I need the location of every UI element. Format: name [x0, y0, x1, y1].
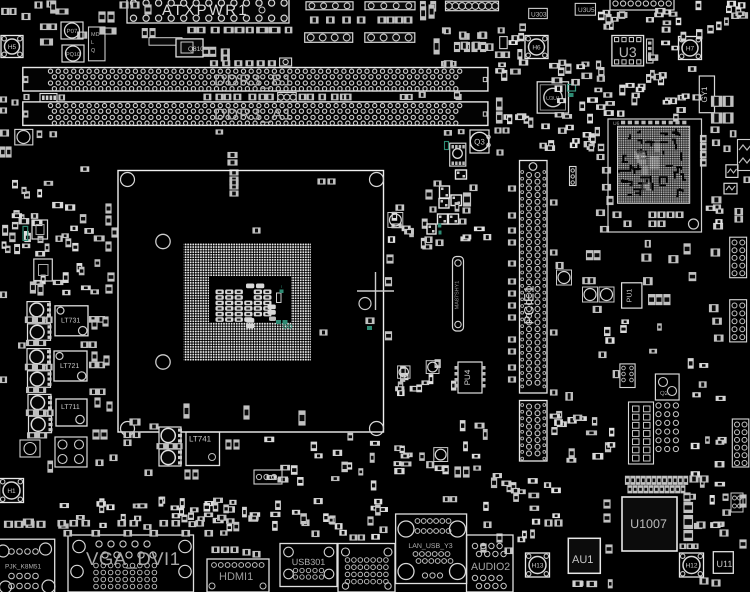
svg-text:PJK_K8M51: PJK_K8M51 — [5, 564, 42, 571]
svg-text:PU1: PU1 — [627, 289, 634, 303]
svg-text:ATXPWR1: ATXPWR1 — [162, 2, 249, 19]
svg-text:H7: H7 — [686, 46, 695, 53]
svg-text:U6: U6 — [613, 121, 620, 127]
svg-text:MA87SHY1: MA87SHY1 — [455, 281, 461, 310]
svg-text:U11: U11 — [717, 559, 733, 569]
svg-text:HDMI1: HDMI1 — [219, 571, 253, 583]
svg-text:Q2: Q2 — [660, 390, 669, 397]
svg-text:VGA_DVI1: VGA_DVI1 — [86, 548, 181, 569]
svg-text:USB301: USB301 — [292, 557, 326, 567]
svg-text:DDR3_B1: DDR3_B1 — [214, 73, 293, 90]
svg-text:L: L — [91, 40, 94, 46]
svg-text:LT711: LT711 — [61, 404, 80, 411]
svg-text:Q3: Q3 — [474, 138, 485, 147]
svg-text:H5: H5 — [8, 44, 17, 51]
svg-text:PU4: PU4 — [463, 369, 472, 385]
svg-text:PCIE1: PCIE1 — [522, 285, 537, 324]
svg-text:U3: U3 — [619, 44, 637, 60]
svg-text:LT731: LT731 — [61, 318, 80, 325]
svg-text:GY1: GY1 — [700, 86, 709, 103]
svg-text:H12: H12 — [686, 563, 698, 570]
svg-text:DDR3_A1: DDR3_A1 — [214, 107, 293, 124]
svg-text:H6: H6 — [532, 45, 541, 52]
svg-text:U1007: U1007 — [630, 517, 667, 531]
svg-text:LAN_USB_Y3: LAN_USB_Y3 — [408, 543, 452, 550]
svg-text:P07: P07 — [67, 28, 78, 35]
svg-text:Q: Q — [91, 48, 96, 54]
svg-text:I: I — [281, 284, 282, 289]
svg-text:H13: H13 — [532, 563, 544, 570]
svg-text:MD: MD — [91, 32, 100, 38]
svg-text:PQ10: PQ10 — [66, 52, 80, 58]
svg-text:U3U5: U3U5 — [578, 7, 595, 14]
svg-text:Q810: Q810 — [188, 46, 204, 53]
svg-text:H1: H1 — [7, 488, 16, 495]
svg-text:AU1: AU1 — [572, 554, 593, 566]
svg-text:AUDIO2: AUDIO2 — [471, 561, 510, 573]
svg-text:U303: U303 — [531, 11, 547, 18]
svg-text:LT721: LT721 — [60, 363, 79, 370]
svg-text:LT741: LT741 — [189, 435, 212, 444]
